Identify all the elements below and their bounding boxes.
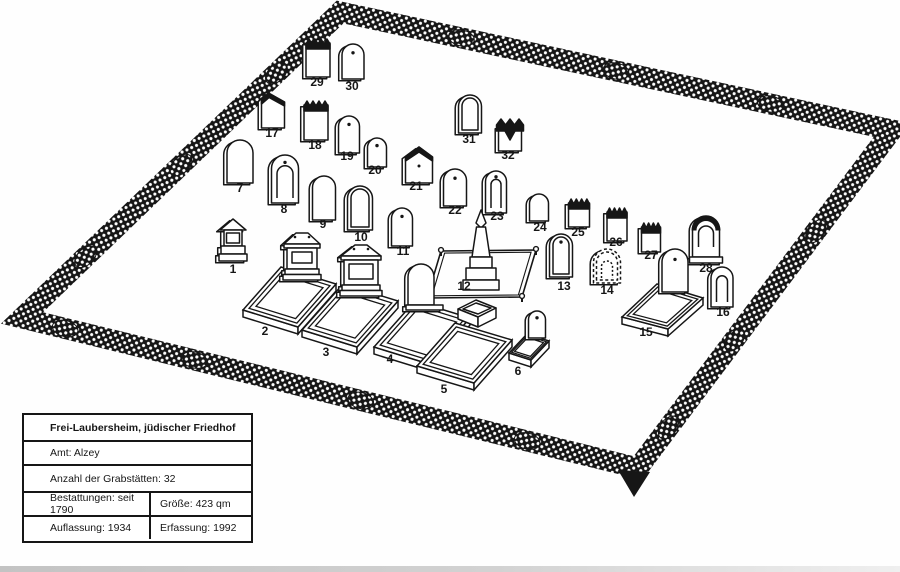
grave-29 xyxy=(303,39,330,79)
info-title: Frei-Laubersheim, jüdischer Friedhof xyxy=(24,415,251,440)
grave-7 xyxy=(224,140,253,185)
grave-label-18: 18 xyxy=(308,138,322,152)
grave-label-13: 13 xyxy=(557,279,571,293)
grave-label-20: 20 xyxy=(368,163,382,177)
info-cell-erfassung: Erfassung: 1992 xyxy=(149,517,251,539)
grave-30 xyxy=(339,44,364,81)
scan-edge-artifact xyxy=(0,566,900,572)
grave-label-19: 19 xyxy=(340,149,354,163)
grave-label-3: 3 xyxy=(323,345,330,359)
grave-label-9: 9 xyxy=(320,217,327,231)
info-box: Frei-Laubersheim, jüdischer Friedhof Amt… xyxy=(22,413,253,543)
grave-label-24: 24 xyxy=(533,220,547,234)
grave-13 xyxy=(546,234,572,279)
grave-label-30: 30 xyxy=(345,79,359,93)
grave-8 xyxy=(268,155,298,205)
grave-label-26: 26 xyxy=(609,235,623,249)
grave-label-22: 22 xyxy=(448,203,462,217)
info-row-bestattungen-groesse: Bestattungen: seit 1790 Größe: 423 qm xyxy=(24,491,251,515)
info-cell-bestattungen: Bestattungen: seit 1790 xyxy=(24,493,149,515)
grave-label-2: 2 xyxy=(262,324,269,338)
grave-12 xyxy=(425,210,539,303)
grave-label-12: 12 xyxy=(457,279,471,293)
grave-label-6: 6 xyxy=(515,364,522,378)
cemetery-plan-page: 2930173118321920217822239242510261127281… xyxy=(0,0,900,572)
grave-label-14: 14 xyxy=(600,283,614,297)
grave-label-17: 17 xyxy=(265,126,279,140)
grave-11 xyxy=(388,208,412,248)
grave-label-25: 25 xyxy=(571,225,585,239)
grave-label-15: 15 xyxy=(639,325,653,339)
grave-label-5: 5 xyxy=(441,382,448,396)
grave-label-7: 7 xyxy=(237,181,244,195)
grave-label-31: 31 xyxy=(462,132,476,146)
grave-6 xyxy=(509,311,549,367)
grave-label-10: 10 xyxy=(354,230,368,244)
grave-24 xyxy=(526,194,548,223)
grave-label-21: 21 xyxy=(409,179,423,193)
grave-label-8: 8 xyxy=(281,202,288,216)
grave-28 xyxy=(686,216,722,265)
grave-1 xyxy=(216,219,247,263)
grave-label-23: 23 xyxy=(490,209,504,223)
grave-label-11: 11 xyxy=(397,244,410,258)
grave-22 xyxy=(440,169,466,208)
grave-label-32: 32 xyxy=(501,148,515,162)
info-cell-auflassung: Auflassung: 1934 xyxy=(24,517,149,539)
grave-9 xyxy=(309,176,335,222)
grave-17 xyxy=(258,93,284,130)
grave-10 xyxy=(344,186,372,232)
grave-label-27: 27 xyxy=(644,248,658,262)
fence xyxy=(22,12,892,468)
grave-label-16: 16 xyxy=(716,305,730,319)
entrance-marker-icon xyxy=(618,470,650,497)
info-cell-groesse: Größe: 423 qm xyxy=(149,493,251,515)
grave-31 xyxy=(455,95,481,135)
info-row-auflassung-erfassung: Auflassung: 1934 Erfassung: 1992 xyxy=(24,515,251,539)
grave-label-1: 1 xyxy=(230,262,237,276)
info-row-anzahl: Anzahl der Grabstätten: 32 xyxy=(24,464,251,491)
grave-label-28: 28 xyxy=(699,261,713,275)
grave-14 xyxy=(590,249,620,285)
grave-label-29: 29 xyxy=(310,75,324,89)
info-row-amt: Amt: Alzey xyxy=(24,440,251,464)
grave-label-4: 4 xyxy=(387,352,394,366)
grave-18 xyxy=(301,101,328,142)
